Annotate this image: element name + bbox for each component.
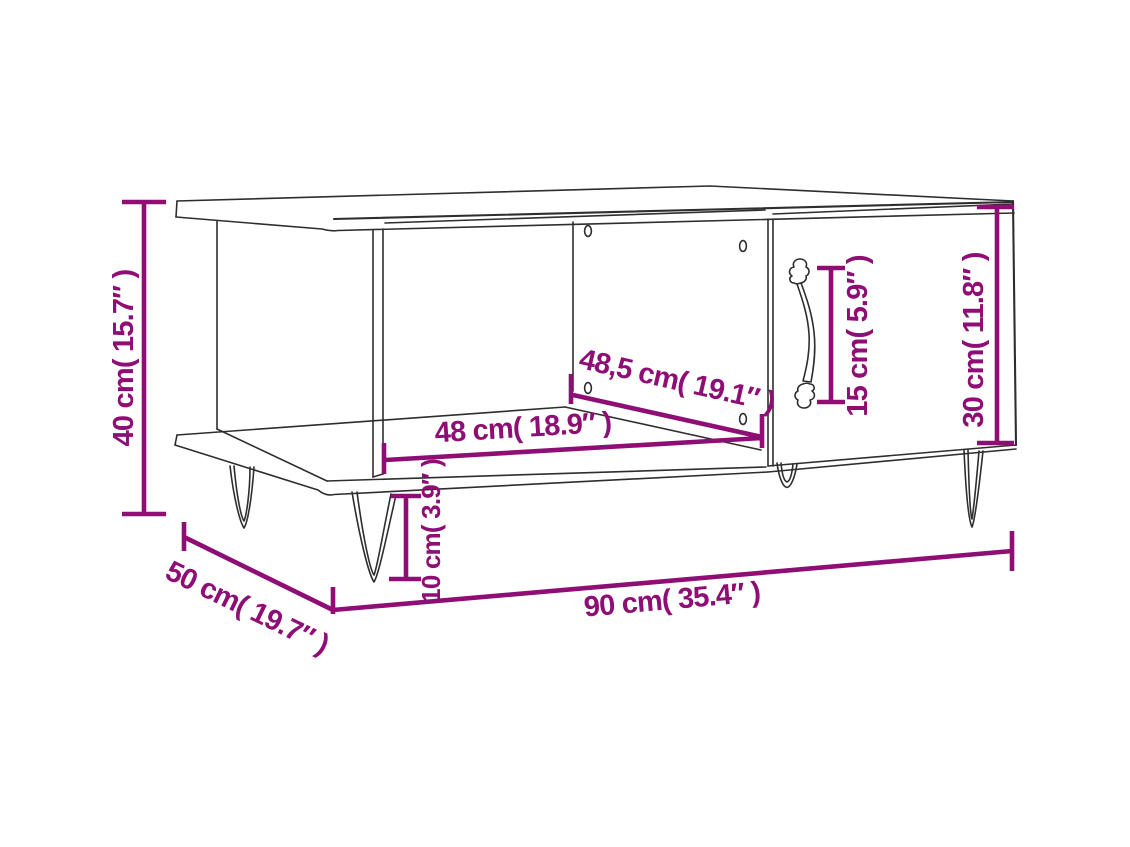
shelf-pin-hole xyxy=(585,383,592,394)
dimension-height: 40 cm( 15.7″ ) xyxy=(108,202,166,514)
door-handle xyxy=(790,259,815,408)
shelf-pin-hole xyxy=(740,241,747,252)
shelf-pin-hole xyxy=(585,226,592,237)
shelf-pin-hole xyxy=(740,414,747,425)
hairpin-leg-back-right xyxy=(777,463,797,488)
dimension-leg-height: 10 cm( 3.9″ ) xyxy=(389,459,446,603)
dimension-label-depth: 50 cm( 19.7″ ) xyxy=(160,555,333,661)
dimension-label-door-height: 30 cm( 11.8″ ) xyxy=(958,252,990,427)
table-drawing xyxy=(175,186,1016,582)
dimension-label-handle-height: 15 cm( 5.9″ ) xyxy=(842,255,874,417)
middle-divider xyxy=(373,229,383,477)
dimensions: 40 cm( 15.7″ ) 50 cm( 19.7″ ) 90 cm( 35.… xyxy=(108,202,1014,661)
dimension-label-width: 90 cm( 35.4″ ) xyxy=(583,576,762,623)
hairpin-leg-front-left xyxy=(352,492,396,582)
hairpin-leg-back-left xyxy=(230,466,254,528)
hairpin-leg-front-right xyxy=(964,450,983,527)
dimension-label-leg-height: 10 cm( 3.9″ ) xyxy=(416,459,446,603)
dimension-label-shelf-width: 48 cm( 18.9″ ) xyxy=(434,407,613,450)
dimension-label-height: 40 cm( 15.7″ ) xyxy=(108,269,140,446)
dimension-handle-height: 15 cm( 5.9″ ) xyxy=(817,255,874,417)
tabletop xyxy=(176,186,1014,231)
dimension-depth: 50 cm( 19.7″ ) xyxy=(160,522,333,661)
diagram-canvas: 40 cm( 15.7″ ) 50 cm( 19.7″ ) 90 cm( 35.… xyxy=(0,0,1130,847)
dimension-door-height: 30 cm( 11.8″ ) xyxy=(958,207,1014,443)
furniture-dimension-diagram: 40 cm( 15.7″ ) 50 cm( 19.7″ ) 90 cm( 35.… xyxy=(0,0,1130,847)
